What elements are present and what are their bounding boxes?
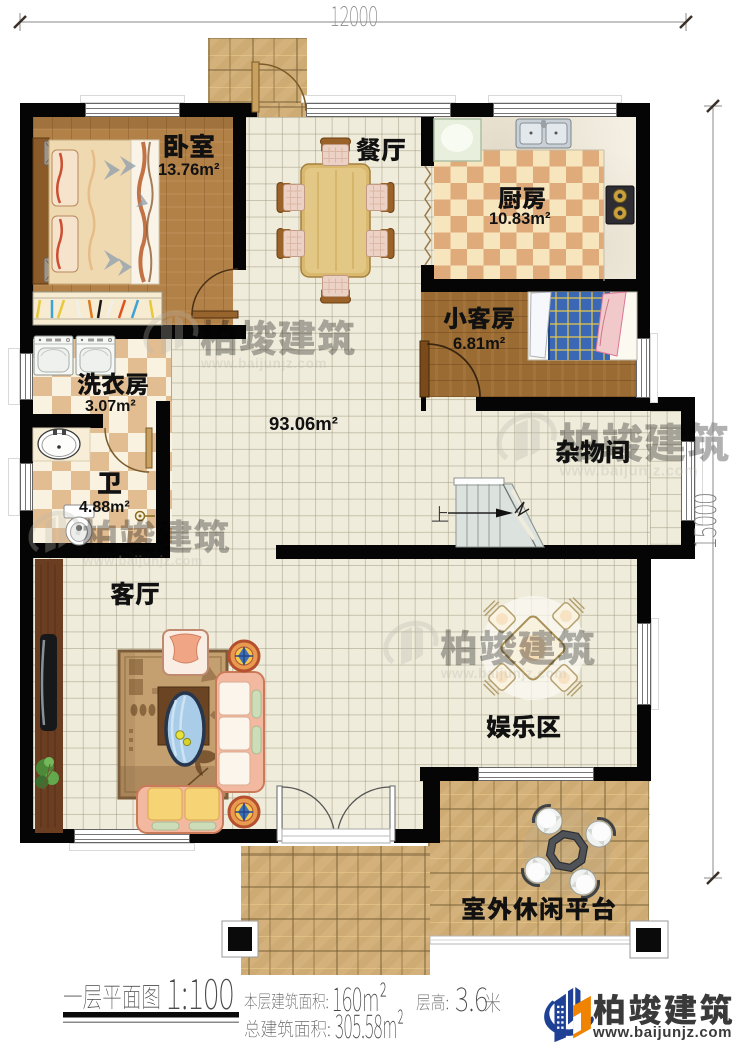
- svg-text:10.83m²: 10.83m²: [489, 210, 551, 228]
- svg-text:www.baijunjz.com: www.baijunjz.com: [592, 1024, 732, 1041]
- svg-text:3.07m²: 3.07m²: [85, 398, 136, 415]
- svg-text:6.81m²: 6.81m²: [453, 335, 506, 353]
- svg-text:13.76m²: 13.76m²: [158, 161, 220, 179]
- svg-text:93.06m²: 93.06m²: [269, 413, 338, 434]
- svg-text:4.88m²: 4.88m²: [79, 499, 130, 516]
